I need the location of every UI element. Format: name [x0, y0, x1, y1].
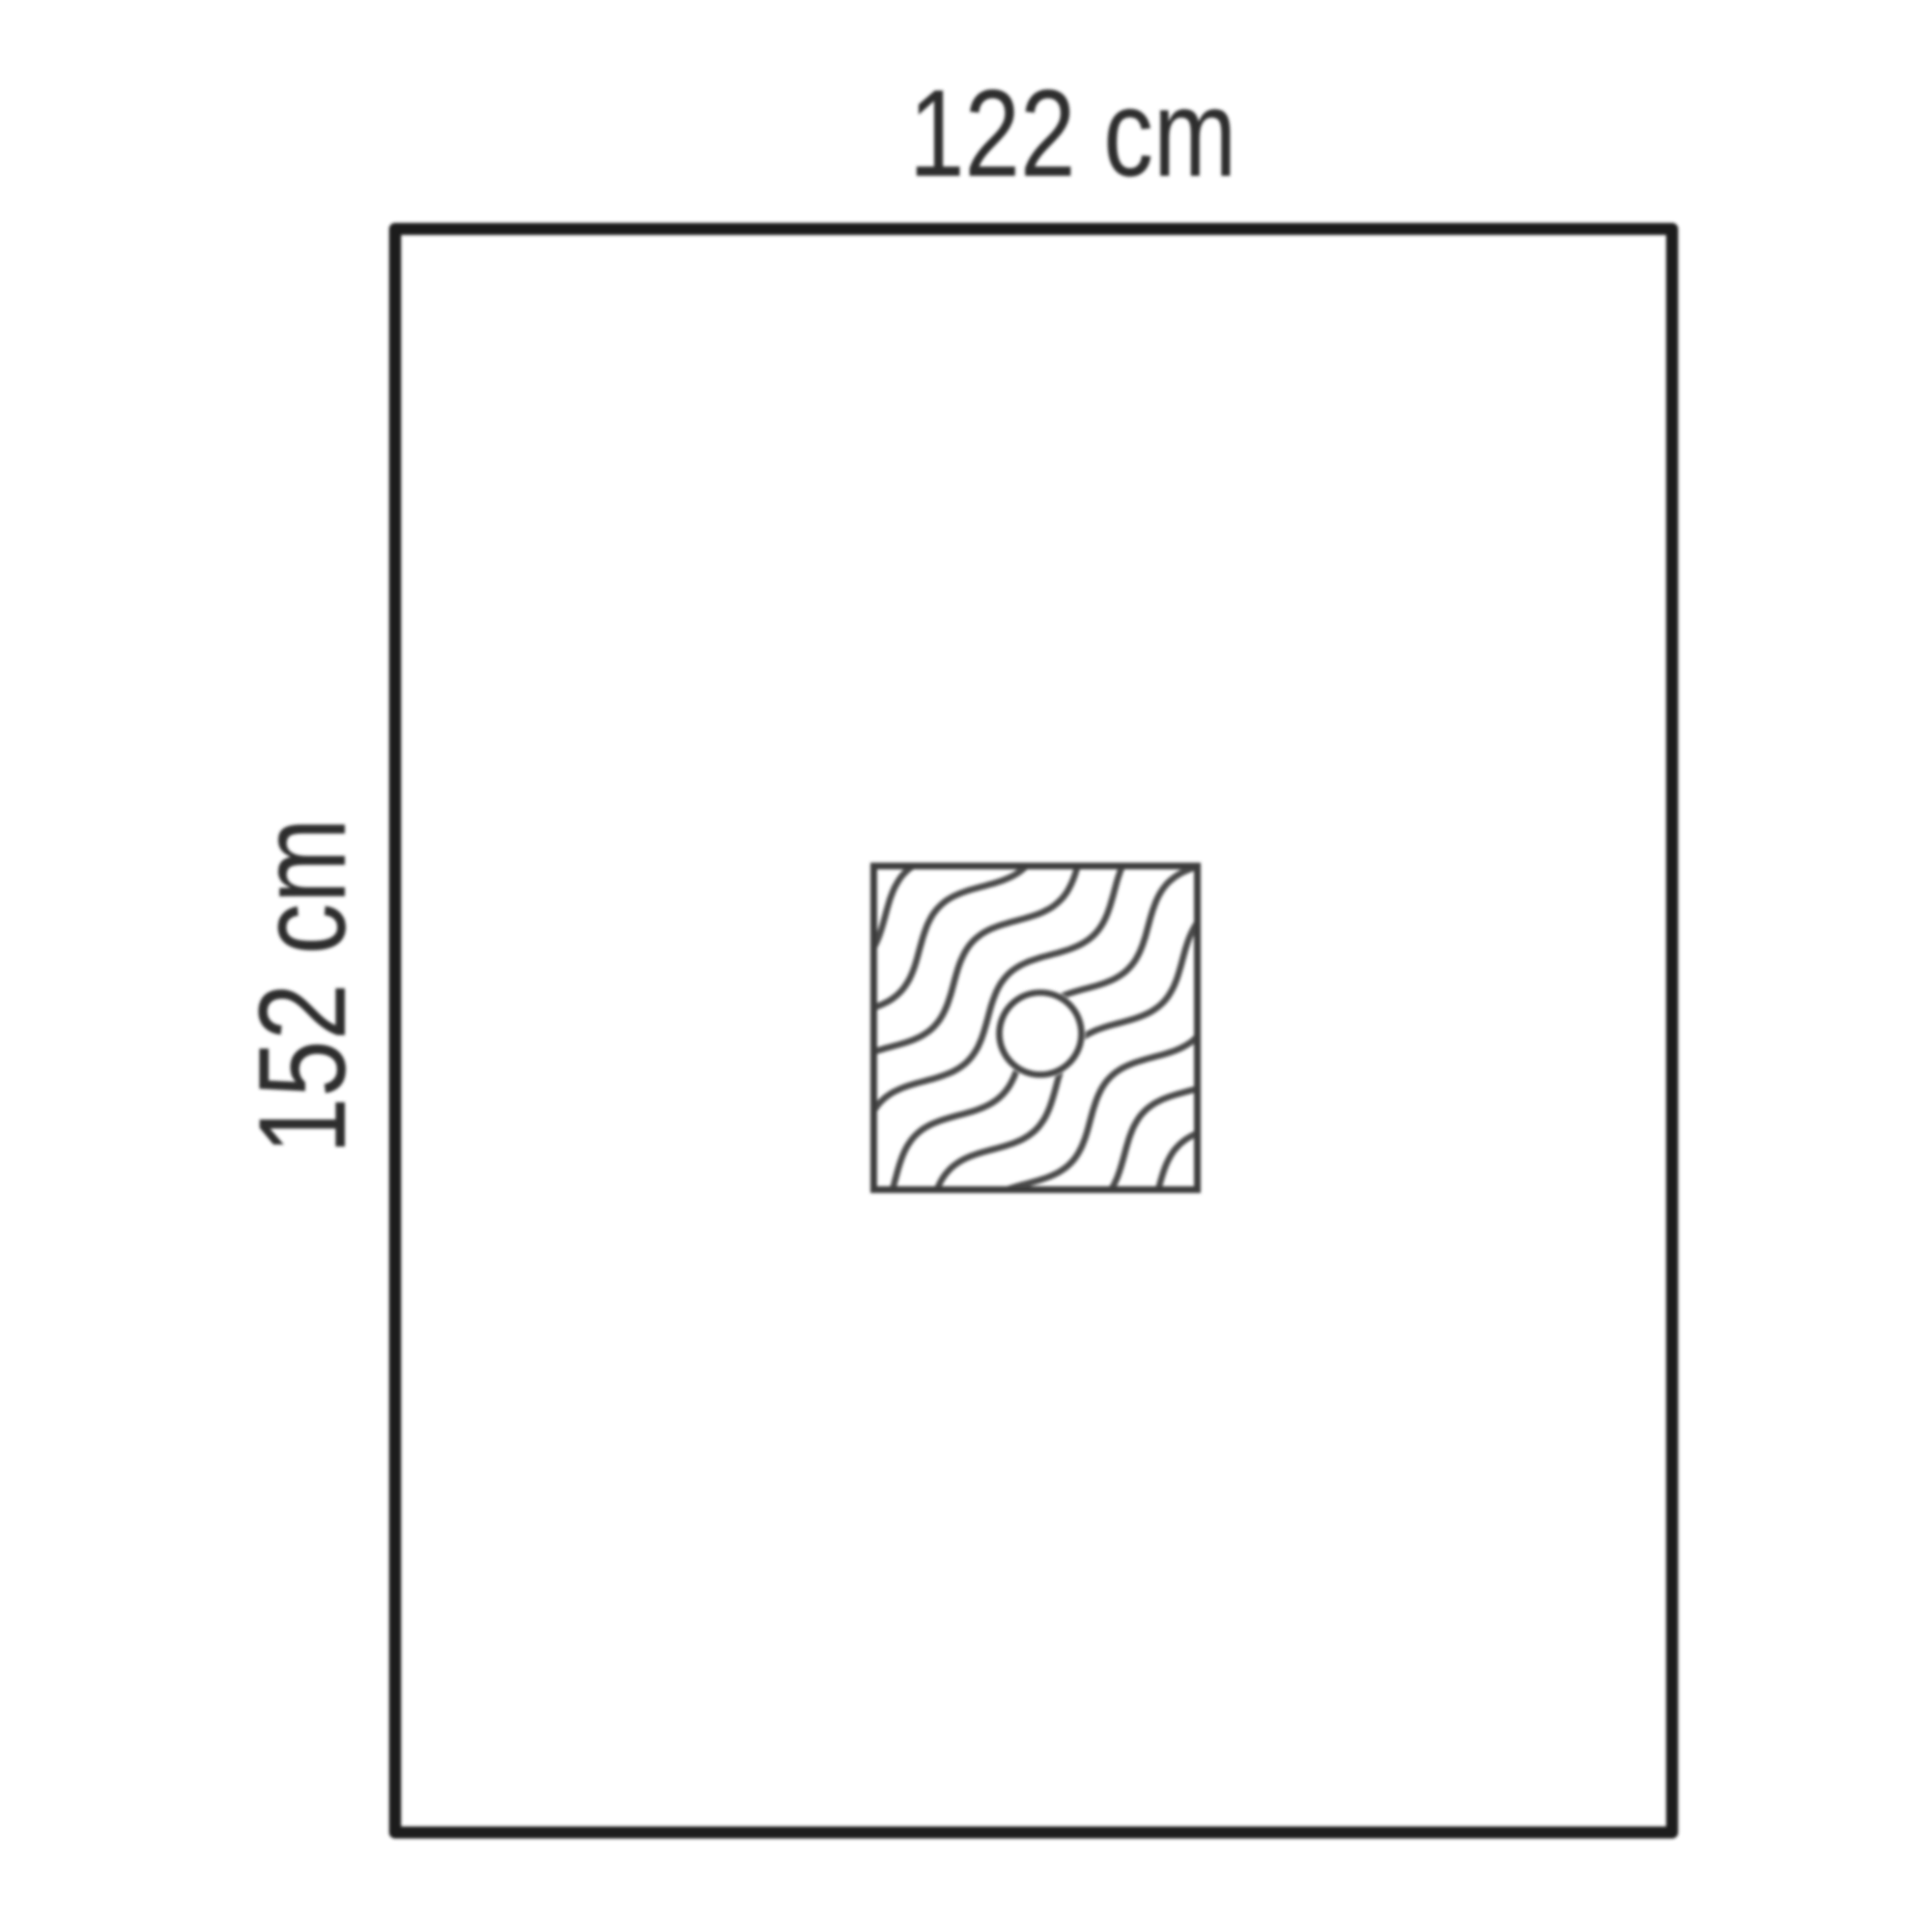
- svg-text:152 cm: 152 cm: [234, 818, 372, 1154]
- svg-text:122 cm: 122 cm: [909, 64, 1236, 202]
